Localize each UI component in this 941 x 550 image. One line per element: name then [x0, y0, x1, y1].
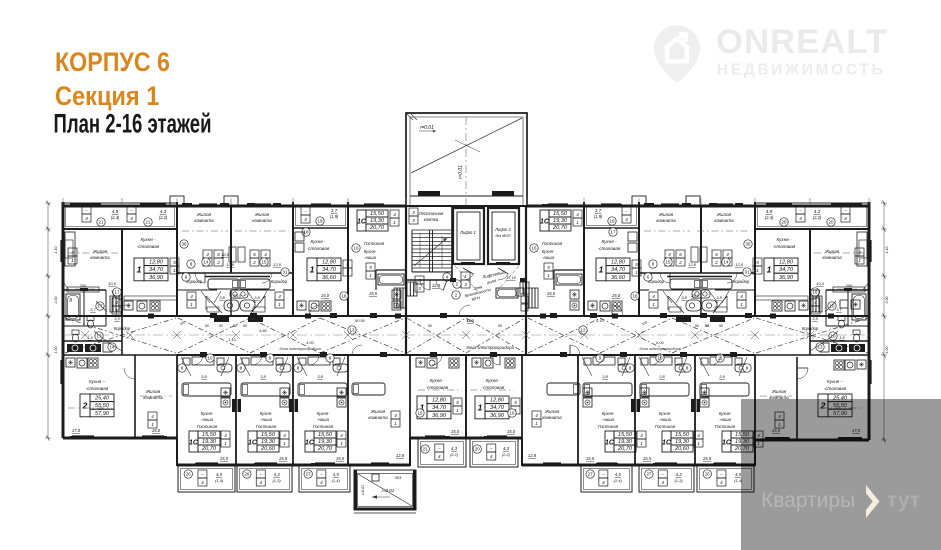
svg-text:4,80: 4,80 — [259, 329, 266, 333]
svg-text:3: 3 — [464, 282, 467, 287]
svg-text:-столовая: -столовая — [598, 246, 621, 251]
svg-text:1: 1 — [283, 441, 286, 446]
svg-text:1: 1 — [369, 273, 372, 278]
svg-text:17,0: 17,0 — [72, 428, 81, 433]
svg-text:–: – — [624, 209, 628, 214]
svg-text:4: 4 — [393, 212, 396, 217]
svg-text:4.3: 4.3 — [814, 209, 821, 214]
svg-text:5: 5 — [514, 400, 517, 405]
svg-text:ОК3: ОК3 — [395, 476, 402, 480]
svg-text:комната: комната — [368, 415, 388, 420]
svg-text:2: 2 — [216, 260, 220, 265]
svg-text:19,30: 19,30 — [370, 218, 385, 224]
svg-text:5: 5 — [173, 260, 176, 265]
svg-text:15: 15 — [666, 260, 671, 265]
svg-text:Зона электрокоридора: Зона электрокоридора — [466, 345, 515, 350]
svg-text:-столовая: -столовая — [86, 386, 109, 391]
svg-text:25,40: 25,40 — [94, 396, 110, 402]
svg-text:15,5: 15,5 — [279, 456, 288, 461]
svg-text:5: 5 — [369, 265, 372, 270]
svg-text:–: – — [129, 208, 133, 213]
svg-text:15: 15 — [262, 260, 267, 265]
svg-text:190: 190 — [641, 320, 648, 326]
svg-text:4,5: 4,5 — [333, 472, 340, 477]
svg-text:Жилая: Жилая — [544, 409, 560, 414]
svg-text:18: 18 — [633, 294, 638, 299]
svg-text:26: 26 — [244, 472, 249, 477]
svg-text:12,80: 12,80 — [322, 260, 337, 266]
svg-text:1,90: 1,90 — [466, 319, 473, 323]
svg-text:1: 1 — [478, 402, 483, 412]
svg-text:34,70: 34,70 — [611, 267, 626, 273]
svg-text:–: – — [601, 472, 605, 477]
svg-text:36,60: 36,60 — [322, 275, 337, 281]
svg-text:1,10: 1,10 — [54, 247, 58, 254]
svg-text:(1,9): (1,9) — [594, 214, 603, 219]
svg-text:1,6: 1,6 — [839, 335, 845, 340]
svg-text:4: 4 — [720, 480, 723, 485]
svg-text:15,5: 15,5 — [369, 291, 378, 296]
svg-text:12,80: 12,80 — [490, 398, 505, 404]
svg-text:1С: 1С — [540, 219, 550, 226]
svg-text:1,6: 1,6 — [87, 335, 93, 340]
svg-text:1: 1 — [756, 268, 759, 273]
svg-text:–: – — [489, 446, 493, 451]
svg-text:36,90: 36,90 — [490, 413, 505, 419]
svg-text:–: – — [437, 446, 441, 451]
svg-text:–: – — [258, 472, 262, 477]
svg-text:4,3: 4,3 — [451, 446, 458, 451]
svg-text:5: 5 — [346, 262, 349, 267]
svg-text:Кухня-: Кухня- — [602, 411, 615, 416]
svg-text:–: – — [319, 472, 323, 477]
svg-text:12,80: 12,80 — [149, 260, 164, 266]
svg-text:-столовая: -столовая — [137, 244, 160, 249]
svg-text:6: 6 — [679, 252, 682, 257]
svg-text:Гостиная: Гостиная — [598, 424, 619, 429]
svg-text:4: 4 — [726, 252, 729, 257]
svg-text:4: 4 — [490, 454, 493, 459]
svg-text:Гостиная: Гостиная — [313, 424, 334, 429]
svg-text:-столовая: -столовая — [773, 244, 796, 249]
svg-text:(2,2): (2,2) — [450, 452, 459, 457]
svg-text:36: 36 — [182, 242, 187, 247]
svg-text:19,30: 19,30 — [202, 439, 217, 445]
svg-text:3,8: 3,8 — [681, 295, 687, 300]
svg-text:(2,2): (2,2) — [159, 215, 168, 220]
svg-text:комната: комната — [656, 218, 676, 223]
svg-text:50: 50 — [428, 324, 432, 328]
svg-text:1: 1 — [640, 441, 643, 446]
svg-text:15,50: 15,50 — [202, 432, 217, 438]
svg-text:комната: комната — [194, 218, 214, 223]
svg-text:4: 4 — [799, 216, 802, 221]
svg-text:Жилая: Жилая — [716, 212, 732, 217]
svg-text:15,50: 15,50 — [370, 211, 385, 217]
svg-text:36,60: 36,60 — [611, 275, 626, 281]
svg-text:38: 38 — [69, 298, 73, 302]
svg-text:1: 1 — [224, 441, 227, 446]
svg-text:15,50: 15,50 — [318, 432, 333, 438]
svg-text:4: 4 — [844, 216, 847, 221]
svg-text:–: – — [303, 209, 307, 214]
svg-text:(1,3): (1,3) — [272, 478, 281, 483]
svg-text:17: 17 — [97, 334, 102, 339]
svg-text:36,90: 36,90 — [779, 275, 794, 281]
svg-text:1: 1 — [137, 264, 142, 274]
svg-text:МГН: МГН — [471, 295, 480, 302]
svg-text:комната: комната — [714, 218, 734, 223]
svg-text:Коридор: Коридор — [114, 326, 131, 331]
svg-text:50: 50 — [719, 324, 723, 328]
svg-text:17: 17 — [98, 304, 103, 309]
svg-text:17: 17 — [611, 230, 616, 235]
svg-text:Гостиная: Гостиная — [715, 424, 736, 429]
svg-text:1: 1 — [535, 421, 538, 426]
svg-text:15,50: 15,50 — [553, 211, 568, 217]
svg-text:17: 17 — [115, 290, 120, 295]
svg-text:-ниша: -ниша — [602, 417, 615, 422]
svg-text:2,00: 2,00 — [885, 297, 889, 304]
svg-text:21: 21 — [99, 220, 104, 225]
svg-text:4: 4 — [206, 252, 209, 257]
svg-text:4: 4 — [438, 454, 441, 459]
svg-text:-ниша: -ниша — [659, 417, 672, 422]
svg-text:20,70: 20,70 — [201, 446, 217, 452]
svg-text:-столовая: -столовая — [426, 385, 449, 390]
svg-text:14: 14 — [110, 345, 115, 350]
svg-text:Кухня-: Кухня- — [719, 411, 732, 416]
svg-text:19,30: 19,30 — [675, 439, 690, 445]
svg-text:i=0.01: i=0.01 — [361, 485, 365, 495]
svg-text:20,60: 20,60 — [674, 446, 690, 452]
svg-text:4,00: 4,00 — [306, 341, 313, 345]
svg-text:4: 4 — [224, 433, 227, 438]
svg-text:15,5: 15,5 — [586, 456, 595, 461]
svg-text:15,0: 15,0 — [451, 429, 460, 434]
svg-text:4,3: 4,3 — [503, 446, 510, 451]
svg-text:Кухня-: Кухня- — [260, 411, 273, 416]
svg-text:34,70: 34,70 — [322, 267, 337, 273]
svg-text:12,8: 12,8 — [396, 453, 405, 458]
svg-text:Кухня -: Кухня - — [601, 239, 617, 244]
svg-text:(2,4): (2,4) — [111, 215, 120, 220]
svg-text:Лестничная: Лестничная — [418, 211, 444, 216]
svg-text:i=0.01: i=0.01 — [458, 165, 464, 179]
svg-text:3,8: 3,8 — [716, 295, 722, 300]
svg-text:6: 6 — [217, 252, 220, 257]
svg-text:i=0.01: i=0.01 — [382, 488, 395, 493]
svg-text:-столовая: -столовая — [482, 385, 505, 390]
svg-text:10: 10 — [208, 356, 213, 361]
svg-text:6: 6 — [253, 252, 256, 257]
svg-text:5: 5 — [547, 265, 550, 270]
svg-text:4: 4 — [661, 480, 664, 485]
svg-text:-ниша: -ниша — [317, 417, 330, 422]
svg-text:31: 31 — [745, 270, 750, 275]
svg-text:3.7: 3.7 — [331, 208, 338, 213]
svg-text:34,70: 34,70 — [149, 267, 164, 273]
svg-text:Зона электрокоридора: Зона электрокоридора — [279, 347, 320, 351]
svg-text:4: 4 — [130, 216, 133, 221]
svg-text:-ниша: -ниша — [719, 417, 732, 422]
svg-text:3: 3 — [412, 218, 415, 223]
svg-text:Кухня –: Кухня – — [827, 379, 844, 384]
svg-text:3,8: 3,8 — [719, 374, 725, 379]
svg-text:1: 1 — [394, 421, 397, 426]
svg-text:холл: холл — [485, 278, 497, 286]
svg-text:тут: тут — [887, 489, 920, 512]
svg-text:-ниша: -ниша — [542, 255, 555, 260]
svg-text:10,6: 10,6 — [108, 281, 117, 286]
svg-text:Кухня-: Кухня- — [542, 249, 555, 254]
svg-text:без МОП: без МОП — [495, 234, 510, 238]
svg-text:15,50: 15,50 — [675, 432, 690, 438]
svg-text:3,8: 3,8 — [201, 374, 207, 379]
svg-text:1,10: 1,10 — [228, 338, 235, 342]
svg-text:15,0: 15,0 — [152, 428, 161, 433]
svg-text:(1,9): (1,9) — [330, 214, 339, 219]
svg-text:34,70: 34,70 — [490, 405, 505, 411]
svg-text:(2,2): (2,2) — [502, 452, 511, 457]
svg-text:4: 4 — [201, 480, 204, 485]
svg-text:50: 50 — [695, 324, 699, 328]
svg-text:1С: 1С — [722, 440, 732, 447]
svg-text:6: 6 — [715, 252, 718, 257]
svg-text:26: 26 — [186, 472, 191, 477]
svg-text:4: 4 — [190, 294, 193, 299]
svg-text:19,30: 19,30 — [318, 439, 333, 445]
svg-text:35,0: 35,0 — [233, 293, 242, 298]
svg-text:комната: комната — [252, 218, 272, 223]
svg-text:4: 4 — [668, 252, 671, 257]
svg-text:4: 4 — [259, 480, 262, 485]
svg-text:2: 2 — [714, 260, 718, 265]
svg-text:3,8: 3,8 — [602, 374, 608, 379]
svg-text:20: 20 — [829, 220, 834, 225]
svg-text:(1,4): (1,4) — [215, 478, 224, 483]
svg-text:12,80: 12,80 — [611, 260, 626, 266]
svg-text:27: 27 — [306, 472, 311, 477]
svg-text:Кухня-: Кухня- — [659, 411, 672, 416]
svg-text:клетка: клетка — [424, 217, 439, 222]
svg-text:4: 4 — [85, 216, 88, 221]
svg-text:4,5: 4,5 — [216, 472, 223, 477]
svg-text:2: 2 — [678, 260, 682, 265]
svg-text:3,8: 3,8 — [219, 295, 225, 300]
svg-text:12,8: 12,8 — [273, 262, 282, 267]
svg-text:Кухня -: Кухня - — [485, 378, 501, 383]
svg-text:4: 4 — [625, 217, 628, 222]
svg-text:Кухня -: Кухня - — [429, 378, 445, 383]
svg-text:Гостиная: Гостиная — [256, 424, 277, 429]
svg-text:Коридор: Коридор — [271, 279, 288, 284]
svg-text:1: 1 — [635, 270, 638, 275]
svg-text:3,8: 3,8 — [260, 374, 266, 379]
svg-text:Гостиная: Гостиная — [655, 424, 676, 429]
svg-text:1: 1 — [547, 273, 550, 278]
svg-text:3,5: 3,5 — [812, 316, 818, 321]
svg-text:16: 16 — [354, 246, 359, 251]
svg-text:4: 4 — [640, 433, 643, 438]
svg-text:–: – — [798, 208, 802, 213]
svg-text:–: – — [843, 208, 847, 213]
svg-text:4,3: 4,3 — [274, 472, 281, 477]
svg-text:20: 20 — [782, 220, 787, 225]
svg-text:4: 4 — [264, 252, 267, 257]
svg-text:26: 26 — [705, 472, 710, 477]
svg-text:Гостиная: Гостиная — [542, 241, 563, 246]
svg-text:18: 18 — [342, 294, 347, 299]
svg-text:50 50: 50 50 — [355, 319, 365, 323]
svg-text:14: 14 — [724, 260, 729, 265]
svg-text:4.3: 4.3 — [160, 209, 167, 214]
svg-text:20,70: 20,70 — [552, 225, 568, 231]
svg-text:–: – — [84, 208, 88, 213]
svg-text:комната: комната — [90, 255, 110, 260]
svg-text:1С: 1С — [357, 219, 367, 226]
svg-text:2: 2 — [82, 400, 88, 410]
svg-text:15,5: 15,5 — [703, 456, 712, 461]
svg-text:34,70: 34,70 — [432, 405, 447, 411]
svg-text:6,00: 6,00 — [656, 341, 663, 345]
svg-text:12,8: 12,8 — [688, 262, 697, 267]
svg-text:27: 27 — [588, 472, 593, 477]
svg-text:Кухня –: Кухня – — [89, 379, 106, 384]
svg-text:–: – — [719, 472, 723, 477]
svg-text:4: 4 — [740, 294, 743, 299]
svg-text:-ниша: -ниша — [201, 417, 214, 422]
svg-text:Жилая: Жилая — [370, 409, 386, 414]
svg-text:5: 5 — [456, 400, 459, 405]
svg-text:3,7: 3,7 — [90, 307, 96, 312]
svg-text:19,30: 19,30 — [618, 439, 633, 445]
svg-text:50: 50 — [705, 324, 709, 328]
svg-text:190: 190 — [179, 320, 186, 326]
svg-text:10,4: 10,4 — [816, 281, 825, 286]
svg-text:50: 50 — [243, 324, 247, 328]
svg-text:(1,4): (1,4) — [614, 478, 623, 483]
svg-text:Квартиры: Квартиры — [761, 489, 855, 512]
svg-text:16: 16 — [813, 290, 818, 295]
svg-text:27: 27 — [646, 472, 651, 477]
svg-text:4: 4 — [151, 414, 154, 419]
svg-text:1: 1 — [190, 302, 193, 307]
svg-text:4.8: 4.8 — [766, 209, 773, 214]
svg-text:36,90: 36,90 — [432, 413, 447, 419]
svg-text:-столовая: -столовая — [307, 246, 330, 251]
svg-text:36,90: 36,90 — [149, 275, 164, 281]
svg-text:1: 1 — [346, 270, 349, 275]
svg-text:5: 5 — [635, 262, 638, 267]
svg-text:15,0: 15,0 — [507, 429, 516, 434]
svg-text:19: 19 — [318, 219, 323, 224]
svg-text:-столовая: -столовая — [824, 386, 847, 391]
svg-text:4: 4 — [278, 294, 281, 299]
svg-text:5,10: 5,10 — [596, 319, 603, 323]
svg-text:3: 3 — [418, 278, 421, 283]
svg-text:50: 50 — [219, 324, 223, 328]
svg-text:1С: 1С — [305, 440, 315, 447]
svg-text:1: 1 — [71, 258, 74, 263]
svg-text:Кухня -: Кухня - — [140, 237, 156, 242]
svg-text:1: 1 — [767, 264, 772, 274]
svg-text:Кухня-: Кухня- — [201, 411, 214, 416]
svg-text:1С: 1С — [662, 440, 672, 447]
svg-text:Жилая: Жилая — [658, 212, 674, 217]
svg-text:1: 1 — [310, 264, 315, 274]
svg-text:20,70: 20,70 — [317, 446, 333, 452]
svg-text:Кухня-: Кухня- — [317, 411, 330, 416]
svg-text:(2,2): (2,2) — [813, 215, 822, 220]
svg-text:15,5: 15,5 — [220, 456, 229, 461]
svg-text:Жилая: Жилая — [145, 389, 161, 394]
svg-text:16: 16 — [510, 411, 515, 416]
svg-text:20,70: 20,70 — [369, 225, 385, 231]
svg-text:Жилая: Жилая — [196, 212, 212, 217]
svg-text:Коридор: Коридор — [802, 326, 819, 331]
svg-text:2,00: 2,00 — [54, 297, 58, 304]
svg-text:4: 4 — [394, 413, 397, 418]
svg-text:16: 16 — [532, 246, 537, 251]
svg-text:14: 14 — [204, 260, 209, 265]
svg-text:(1,4): (1,4) — [332, 478, 341, 483]
svg-text:20: 20 — [475, 447, 480, 452]
svg-text:12,8: 12,8 — [528, 453, 537, 458]
svg-text:3.7: 3.7 — [595, 208, 602, 213]
svg-text:Коридор: Коридор — [733, 279, 750, 284]
svg-text:4: 4 — [340, 433, 343, 438]
svg-text:12,80: 12,80 — [432, 398, 447, 404]
svg-text:15: 15 — [418, 411, 423, 416]
svg-text:1: 1 — [697, 441, 700, 446]
svg-text:1: 1 — [340, 441, 343, 446]
svg-text:3,5: 3,5 — [114, 316, 120, 321]
svg-text:4: 4 — [320, 480, 323, 485]
svg-text:4: 4 — [858, 250, 861, 255]
svg-text:15,50: 15,50 — [618, 432, 633, 438]
svg-text:12,8: 12,8 — [226, 262, 235, 267]
svg-text:1: 1 — [576, 220, 579, 225]
svg-text:35,0: 35,0 — [691, 293, 700, 298]
svg-text:Лифт 1: Лифт 1 — [459, 230, 476, 235]
svg-text:2: 2 — [252, 260, 256, 265]
svg-text:3,8: 3,8 — [317, 374, 323, 379]
svg-text:15,5: 15,5 — [547, 291, 556, 296]
svg-text:4: 4 — [576, 212, 579, 217]
svg-text:Гостиная: Гостиная — [364, 241, 385, 246]
svg-text:15,5: 15,5 — [336, 456, 345, 461]
svg-text:4,3: 4,3 — [676, 472, 683, 477]
svg-text:комната: комната — [542, 415, 562, 420]
svg-text:20,70: 20,70 — [617, 446, 633, 452]
svg-text:12,8: 12,8 — [735, 262, 744, 267]
svg-text:19: 19 — [610, 219, 615, 224]
svg-text:Кухня -: Кухня - — [776, 237, 792, 242]
svg-text:4.8: 4.8 — [112, 209, 119, 214]
svg-text:4: 4 — [697, 433, 700, 438]
svg-text:Жилая: Жилая — [771, 389, 787, 394]
svg-text:1: 1 — [740, 302, 743, 307]
svg-text:4: 4 — [602, 480, 605, 485]
svg-text:20,60: 20,60 — [260, 446, 276, 452]
svg-text:21: 21 — [146, 220, 151, 225]
svg-text:1: 1 — [278, 302, 281, 307]
svg-text:–: – — [200, 472, 204, 477]
svg-text:1С: 1С — [605, 440, 615, 447]
svg-text:3: 3 — [418, 286, 421, 291]
svg-text:12,8: 12,8 — [221, 252, 230, 257]
